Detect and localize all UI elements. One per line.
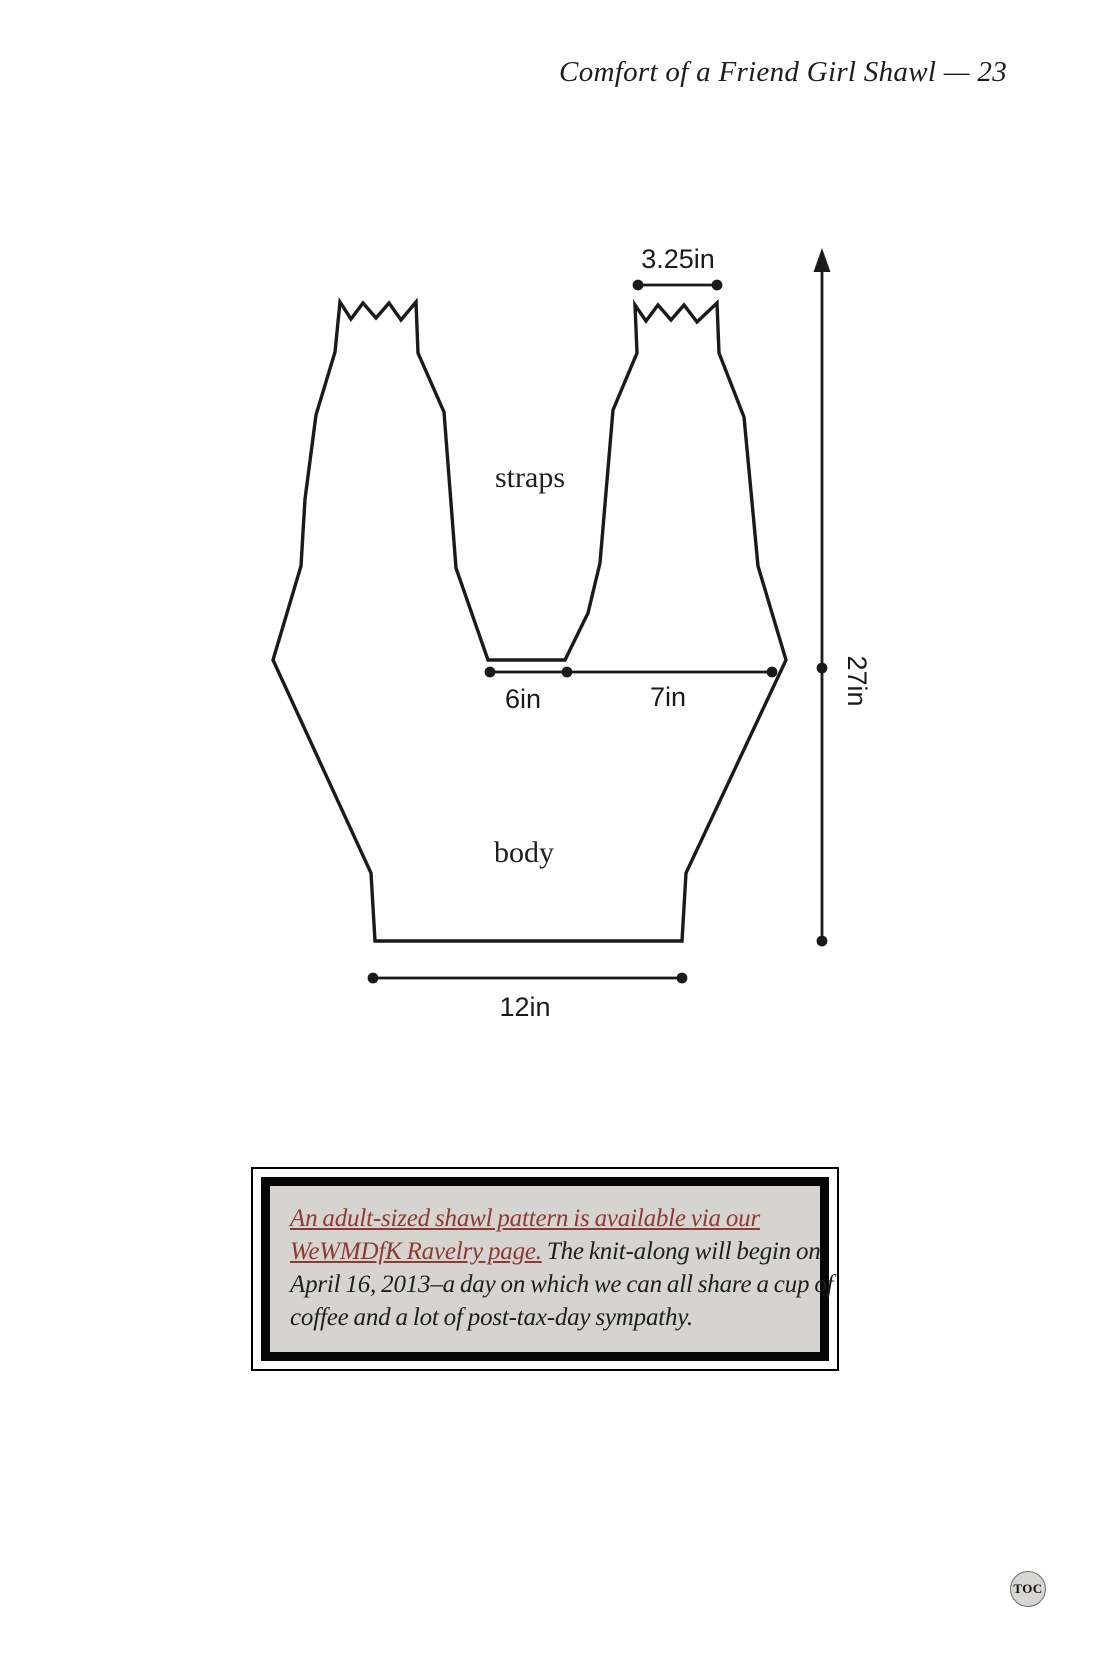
straps-label: straps <box>495 461 565 494</box>
bottom-width-value: 12in <box>499 992 550 1022</box>
pattern-page: Comfort of a Friend Girl Shawl — 23 stra… <box>0 0 1100 1661</box>
shawl-schematic: straps body 3.25in 6in 7in 27 <box>0 0 1100 1100</box>
dim-strap-top-width: 3.25in <box>633 244 723 290</box>
dim-bottom-width: 12in <box>368 973 688 1022</box>
dim-total-height: 27in <box>814 248 873 946</box>
note-body-line4: coffee and a lot of post-tax-day sympath… <box>290 1304 693 1331</box>
note-box-inner: An adult-sized shawl pattern is availabl… <box>261 1177 829 1361</box>
note-text: An adult-sized shawl pattern is availabl… <box>290 1202 806 1334</box>
gap-width-value: 6in <box>505 684 541 714</box>
strap-top-width-value: 3.25in <box>641 244 715 274</box>
total-height-value: 27in <box>842 655 872 706</box>
body-label: body <box>494 836 554 869</box>
note-body-line2: The knit-along will begin on <box>542 1238 821 1265</box>
side-width-value: 7in <box>650 682 686 712</box>
note-box: An adult-sized shawl pattern is availabl… <box>251 1167 839 1371</box>
dim-gap-width: 6in <box>485 667 573 714</box>
ravelry-link-line2[interactable]: WeWMDfK Ravelry page. <box>290 1238 542 1265</box>
note-body-line3: April 16, 2013–a day on which we can all… <box>290 1271 833 1298</box>
toc-button[interactable]: TOC <box>1010 1571 1046 1607</box>
ravelry-link-line1[interactable]: An adult-sized shawl pattern is availabl… <box>290 1205 760 1232</box>
dim-side-width: 7in <box>567 667 777 712</box>
